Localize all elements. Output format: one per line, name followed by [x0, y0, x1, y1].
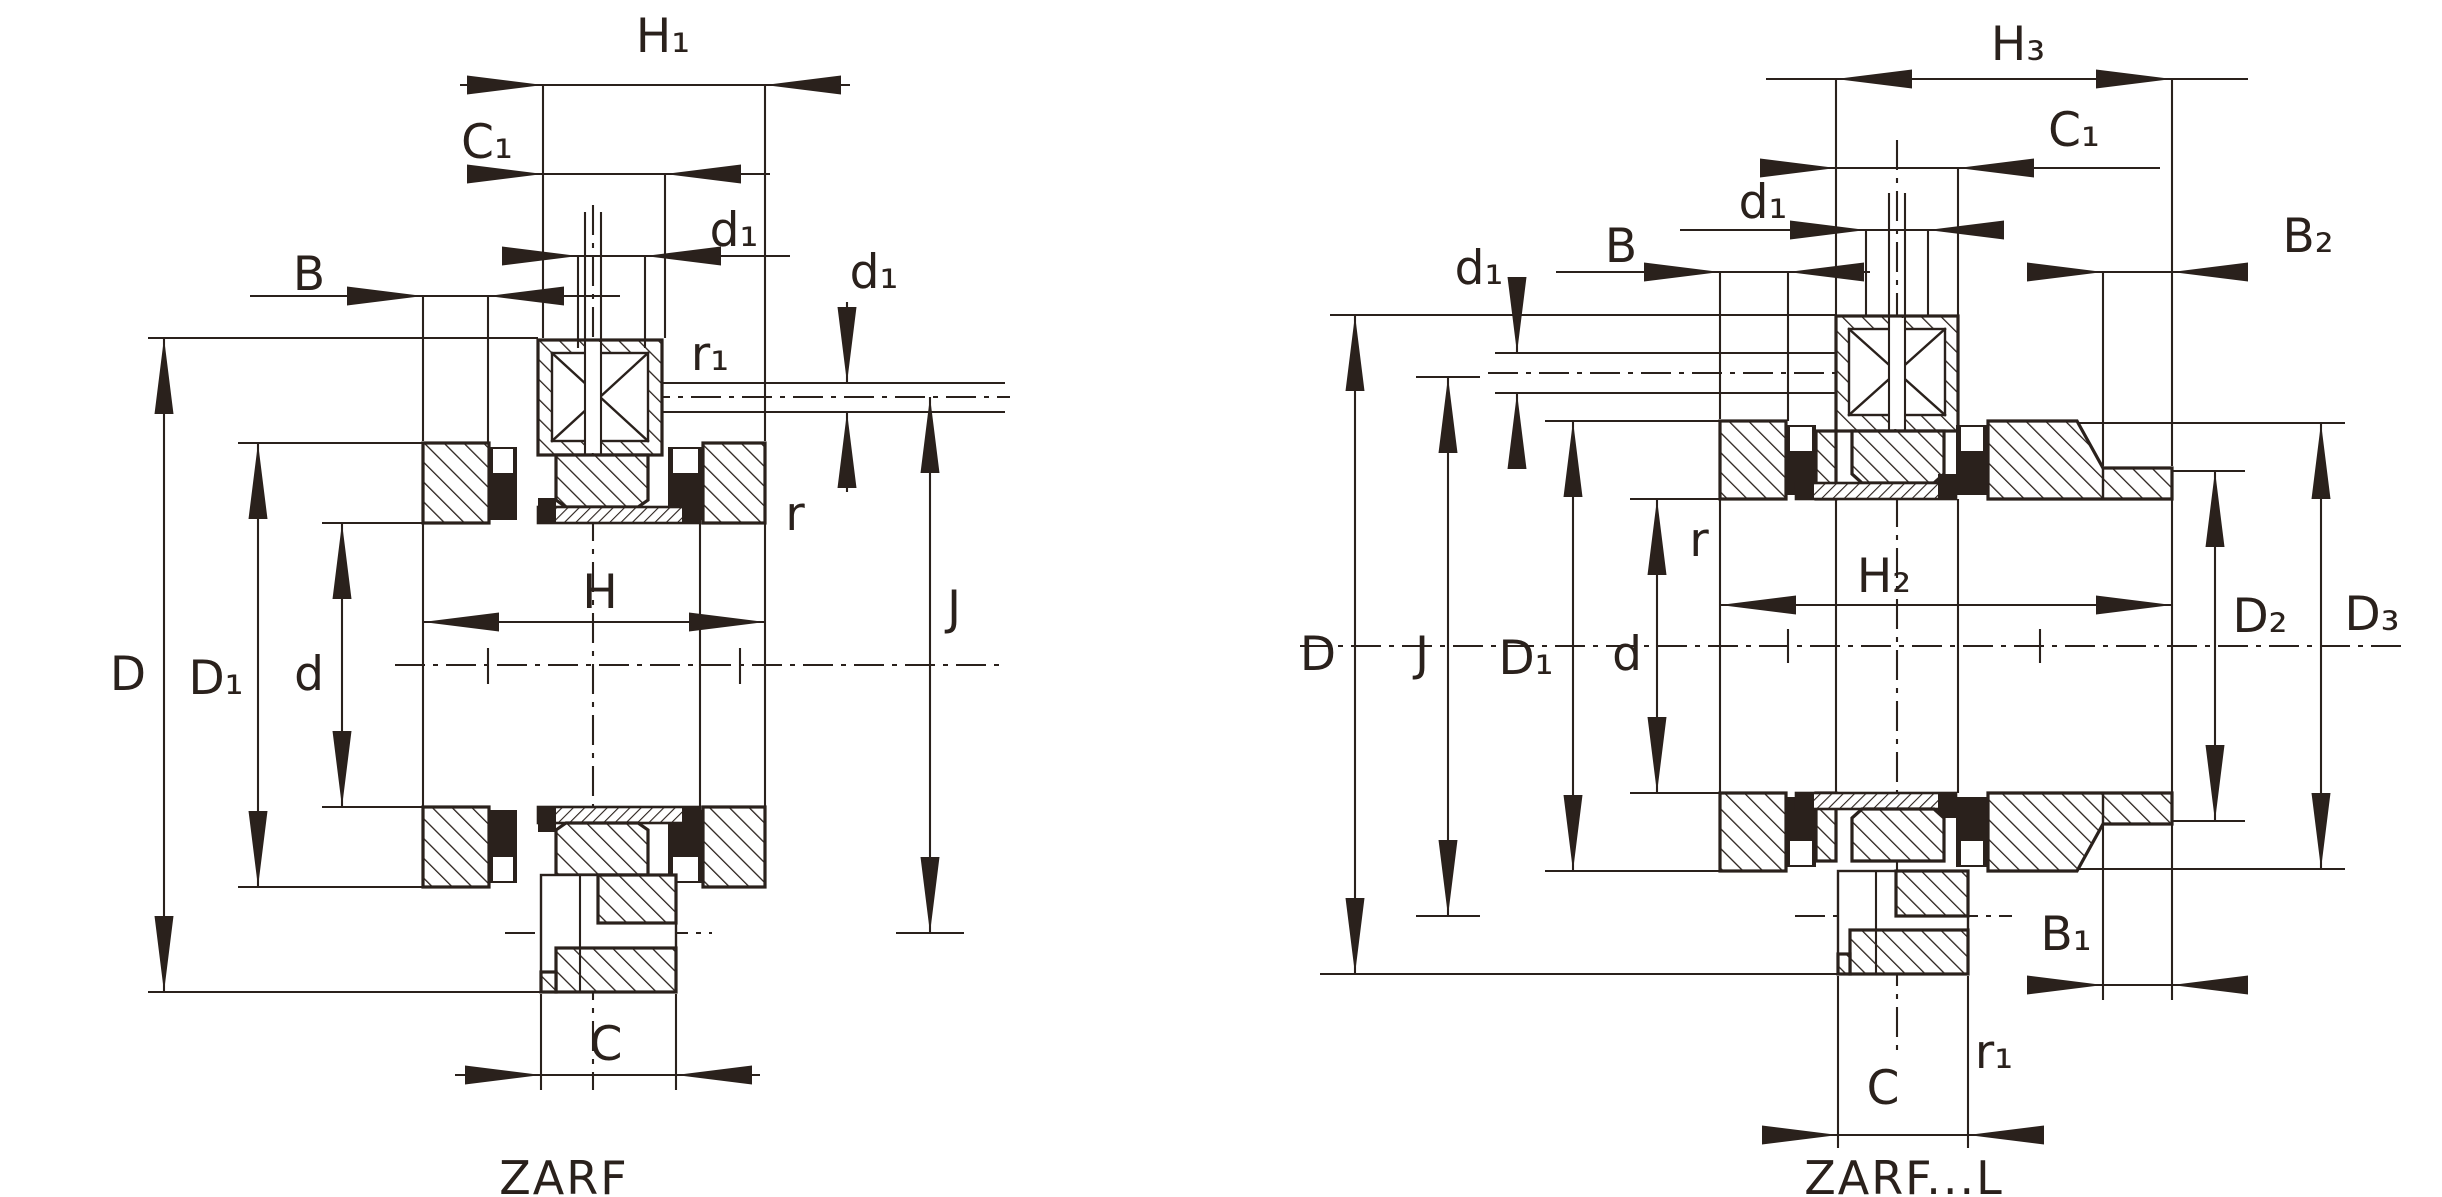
diagram-zarf: H₁ C₁ d₁ B r₁ d₁ r H D D₁ d J C ZARF	[110, 9, 1010, 1197]
label-zarf-r1: r₁	[691, 327, 729, 382]
label-zarfl-b: B	[1605, 219, 1637, 274]
technical-drawing-canvas: H₁ C₁ d₁ B r₁ d₁ r H D D₁ d J C ZARF	[0, 0, 2442, 1197]
label-zarf-d1-cap: D₁	[188, 651, 243, 706]
label-zarf-d-small: d	[294, 647, 324, 702]
label-zarf-h: H	[582, 565, 617, 620]
label-zarfl-h3: H₃	[1991, 17, 2045, 72]
diagram-zarf-l: H₃ C₁ d₁ B B₂ d₁ r H₂ D J D₁ d D₂ D₃ B₁ …	[1300, 17, 2408, 1197]
label-zarf-b: B	[293, 247, 325, 302]
label-zarf-d1-top: d₁	[710, 203, 759, 258]
label-zarf-d1-side: d₁	[850, 245, 899, 300]
label-zarf-h1: H₁	[636, 9, 690, 64]
label-zarfl-d3: D₃	[2344, 587, 2399, 642]
caption-zarf: ZARF	[499, 1151, 628, 1197]
label-zarfl-r1: r₁	[1975, 1025, 2013, 1080]
label-zarf-j: J	[944, 581, 961, 636]
zarfl-dimensions	[1346, 70, 2331, 1149]
page: H₁ C₁ d₁ B r₁ d₁ r H D D₁ d J C ZARF	[0, 0, 2442, 1197]
label-zarfl-c1: C₁	[2048, 103, 2100, 158]
label-zarfl-c: C	[1867, 1061, 1900, 1116]
zarfl-reference-lines	[1320, 315, 2345, 974]
label-zarfl-d-small: d	[1612, 627, 1642, 682]
label-zarfl-b2: B₂	[2282, 209, 2333, 264]
label-zarfl-d1-side: d₁	[1455, 241, 1504, 296]
zarfl-labels: H₃ C₁ d₁ B B₂ d₁ r H₂ D J D₁ d D₂ D₃ B₁ …	[1300, 17, 2400, 1197]
caption-zarf-l: ZARF...L	[1804, 1151, 2004, 1197]
label-zarf-r: r	[785, 487, 805, 542]
label-zarf-c1: C₁	[461, 115, 513, 170]
label-zarfl-r: r	[1689, 513, 1709, 568]
label-zarfl-h2: H₂	[1857, 549, 1911, 604]
label-zarfl-d2: D₂	[2232, 589, 2287, 644]
label-zarfl-d-cap: D	[1300, 627, 1336, 682]
label-zarf-d-cap: D	[110, 647, 146, 702]
label-zarfl-b1: B₁	[2040, 907, 2091, 962]
label-zarfl-d1-cap: D₁	[1498, 631, 1553, 686]
zarf-labels: H₁ C₁ d₁ B r₁ d₁ r H D D₁ d J C ZARF	[110, 9, 961, 1197]
label-zarfl-d1-top: d₁	[1739, 175, 1788, 230]
label-zarf-c: C	[590, 1017, 623, 1072]
label-zarfl-j: J	[1412, 627, 1429, 682]
